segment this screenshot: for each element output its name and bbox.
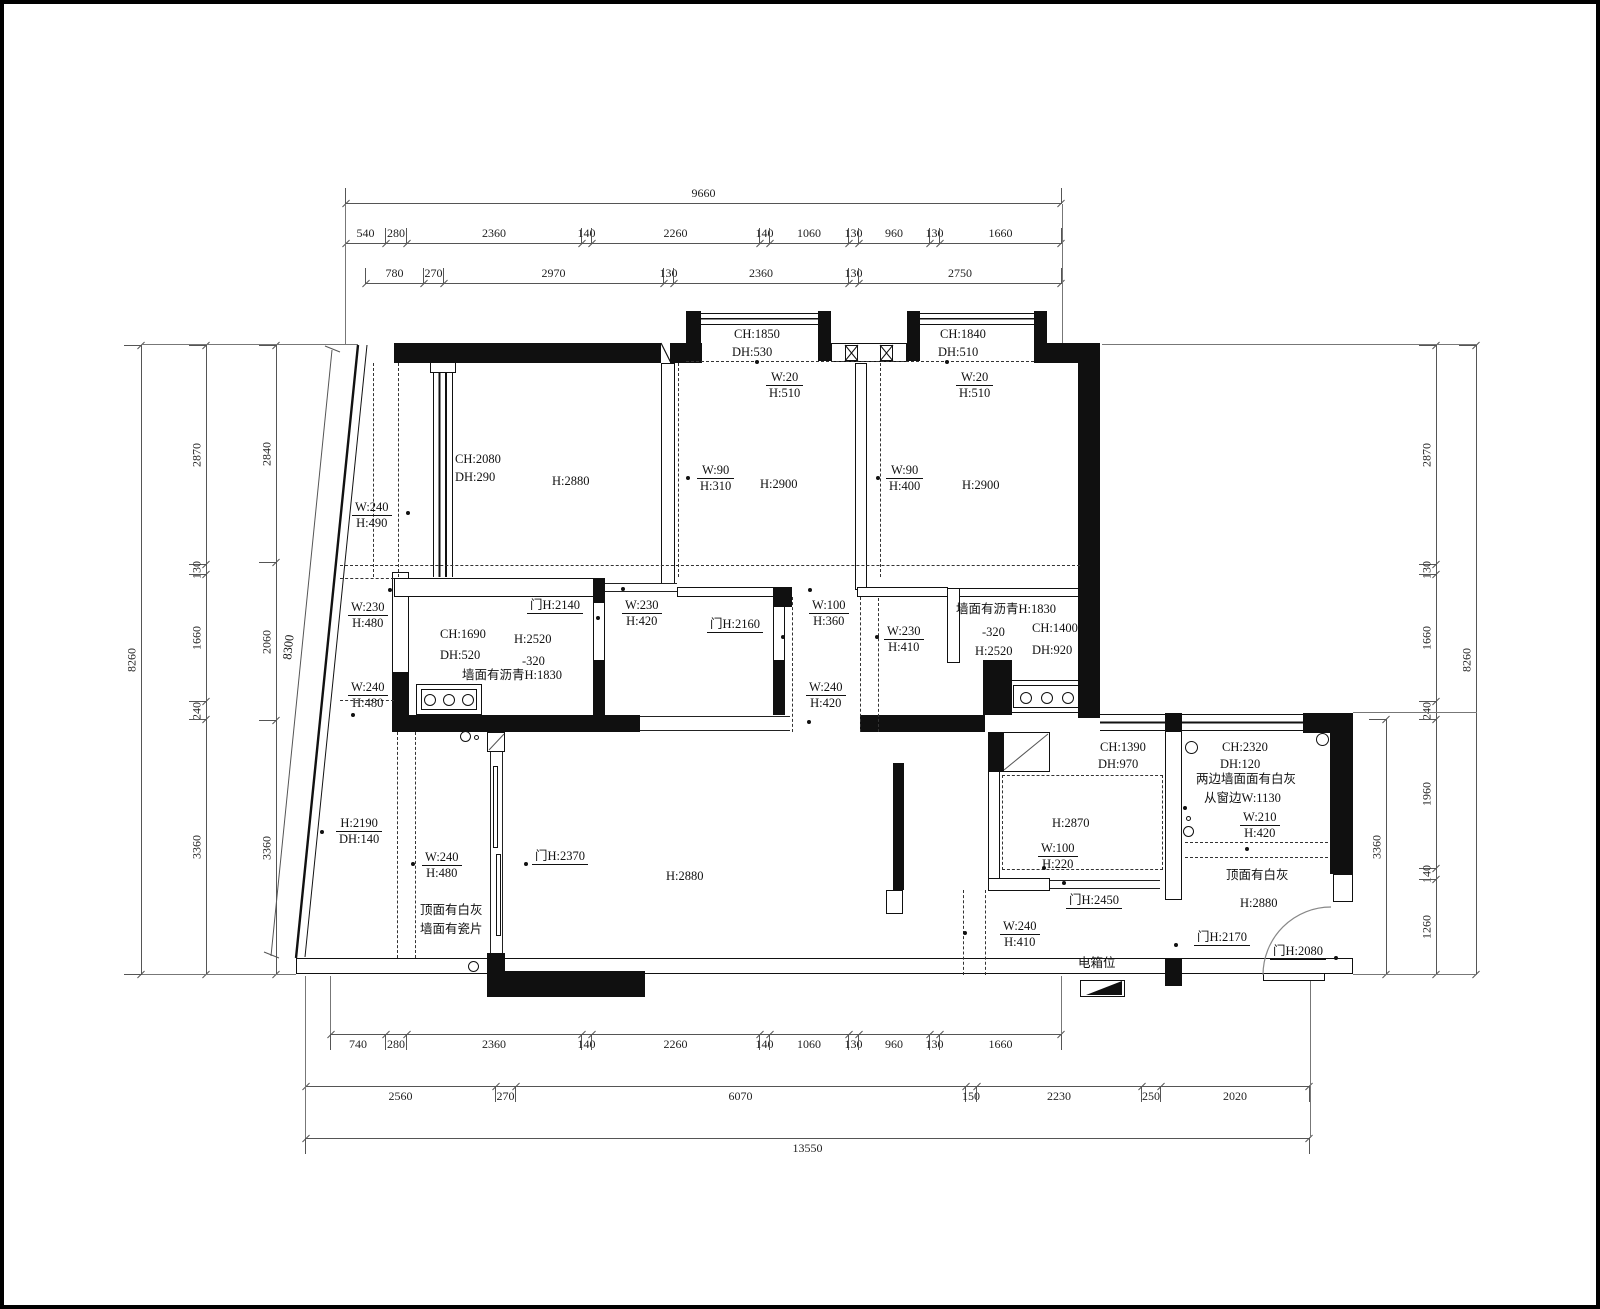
- label-entry-from-window: 从窗边W:1130: [1204, 791, 1281, 805]
- slant-wall-inner: [305, 345, 367, 957]
- door-swing-arc: [1263, 907, 1331, 975]
- label-k1-dh: DH:520: [440, 648, 480, 662]
- wall-break-line: [661, 343, 671, 363]
- label-beam-w240-h480-living: W:240H:480: [422, 850, 462, 881]
- leader-dot: [781, 635, 785, 639]
- stove-burner: [424, 694, 436, 706]
- label-bath-wall-finish: 墙面有瓷片: [420, 922, 483, 936]
- floor-plan-sheet: 9660 54028023601402260140106013096013016…: [0, 0, 1600, 1309]
- leader-dot: [876, 476, 880, 480]
- leader-dot: [411, 862, 415, 866]
- label-entry-height: H:2880: [1240, 896, 1278, 910]
- label-room-b-height: H:2900: [760, 477, 798, 491]
- leader-dot: [875, 635, 879, 639]
- dim-tick: [325, 346, 340, 352]
- label-living-height: H:2880: [666, 869, 704, 883]
- label-bay2-ch: CH:1840: [940, 327, 986, 341]
- label-beam-w90-h310: W:90H:310: [697, 463, 734, 494]
- label-entry-wall-finish: 两边墙面面有白灰: [1196, 772, 1296, 786]
- label-entry-dh: DH:120: [1220, 757, 1260, 771]
- leader-dot: [945, 360, 949, 364]
- cabinet-diagonal: [1004, 734, 1048, 770]
- label-kitchen-height: H:2870: [1052, 816, 1090, 830]
- label-beam-w20-h510-c: W:20H:510: [956, 370, 993, 401]
- leader-dot: [1183, 806, 1187, 810]
- label-k2-dh: DH:920: [1032, 643, 1072, 657]
- label-k1-wall-finish: 墙面有沥青H:1830: [462, 668, 562, 682]
- label-room-a-dh: DH:290: [455, 470, 495, 484]
- label-k1-height: H:2520: [514, 632, 552, 646]
- label-room-a-height: H:2880: [552, 474, 590, 488]
- label-h2190-dh140: H:2190DH:140: [336, 816, 382, 847]
- slant-dim-line: [271, 350, 332, 956]
- electric-box-symbol: [1086, 981, 1122, 995]
- hinge-circle: [460, 731, 471, 742]
- leader-dot: [596, 616, 600, 620]
- leader-dot: [807, 720, 811, 724]
- label-kitchen-dh: DH:970: [1098, 757, 1138, 771]
- stove-burner: [1062, 692, 1074, 704]
- label-beam-w240-h490: W:240H:490: [352, 500, 392, 531]
- label-k2-offset: -320: [982, 625, 1005, 639]
- label-k1-ch: CH:1690: [440, 627, 486, 641]
- label-k1-offset: -320: [522, 654, 545, 668]
- leader-dot: [351, 713, 355, 717]
- leader-dot: [1174, 943, 1178, 947]
- stove-burner: [462, 694, 474, 706]
- label-k2-ch: CH:1400: [1032, 621, 1078, 635]
- hinge-circle: [1185, 741, 1198, 754]
- label-beam-w240-h420: W:240H:420: [806, 680, 846, 711]
- label-beam-w90-h400: W:90H:400: [886, 463, 923, 494]
- leader-dot: [808, 588, 812, 592]
- label-door-2450: 门H:2450: [1066, 893, 1122, 909]
- leader-dot: [686, 476, 690, 480]
- leader-dot: [1334, 956, 1338, 960]
- label-bay2-dh: DH:510: [938, 345, 978, 359]
- label-beam-w20-h510-b: W:20H:510: [766, 370, 803, 401]
- hinge-circle: [468, 961, 479, 972]
- leader-dot: [1062, 881, 1066, 885]
- hinge-circle: [1186, 816, 1191, 821]
- leader-dot: [755, 360, 759, 364]
- label-entry-ceiling-finish: 顶面有白灰: [1226, 868, 1289, 882]
- label-bay1-dh: DH:530: [732, 345, 772, 359]
- label-beam-w240-h480: W:240H:480: [348, 680, 388, 711]
- label-door-2080: 门H:2080: [1270, 944, 1326, 960]
- leader-dot: [388, 588, 392, 592]
- label-room-c-height: H:2900: [962, 478, 1000, 492]
- label-beam-w240-h410: W:240H:410: [1000, 919, 1040, 950]
- label-door-2160: 门H:2160: [707, 617, 763, 633]
- leader-dot: [320, 830, 324, 834]
- label-room-a-ch: CH:2080: [455, 452, 501, 466]
- label-bay1-ch: CH:1850: [734, 327, 780, 341]
- stove-burner: [443, 694, 455, 706]
- label-k2-wall-finish: 墙面有沥青H:1830: [956, 602, 1056, 616]
- label-beam-w100-h220: W:100H:220: [1038, 841, 1078, 872]
- hinge-circle: [1316, 733, 1329, 746]
- label-bath-ceiling-finish: 顶面有白灰: [420, 903, 483, 917]
- stove-burner: [1041, 692, 1053, 704]
- label-kitchen-ch: CH:1390: [1100, 740, 1146, 754]
- label-door-2170: 门H:2170: [1194, 930, 1250, 946]
- stove-burner: [1020, 692, 1032, 704]
- leader-dot: [621, 587, 625, 591]
- leader-dot: [963, 931, 967, 935]
- label-electric-box: 电箱位: [1078, 956, 1116, 970]
- label-beam-w230-h410: W:230H:410: [884, 624, 924, 655]
- hinge-circle: [1183, 826, 1194, 837]
- label-entry-ch: CH:2320: [1222, 740, 1268, 754]
- label-door-2370: 门H:2370: [532, 849, 588, 865]
- overlay-lines: [0, 0, 1600, 1309]
- label-door-2140: 门H:2140: [527, 598, 583, 614]
- label-beam-w100-h360: W:100H:360: [809, 598, 849, 629]
- label-beam-w230-h480: W:230H:480: [348, 600, 388, 631]
- slant-wall-outer: [296, 345, 358, 958]
- leader-dot: [1245, 847, 1249, 851]
- label-beam-w230-h420: W:230H:420: [622, 598, 662, 629]
- leader-dot: [406, 511, 410, 515]
- label-k2-height: H:2520: [975, 644, 1013, 658]
- leader-dot: [524, 862, 528, 866]
- label-beam-w210-h420: W:210H:420: [1240, 810, 1280, 841]
- hinge-circle: [474, 735, 479, 740]
- pocket-diagonal: [489, 734, 504, 750]
